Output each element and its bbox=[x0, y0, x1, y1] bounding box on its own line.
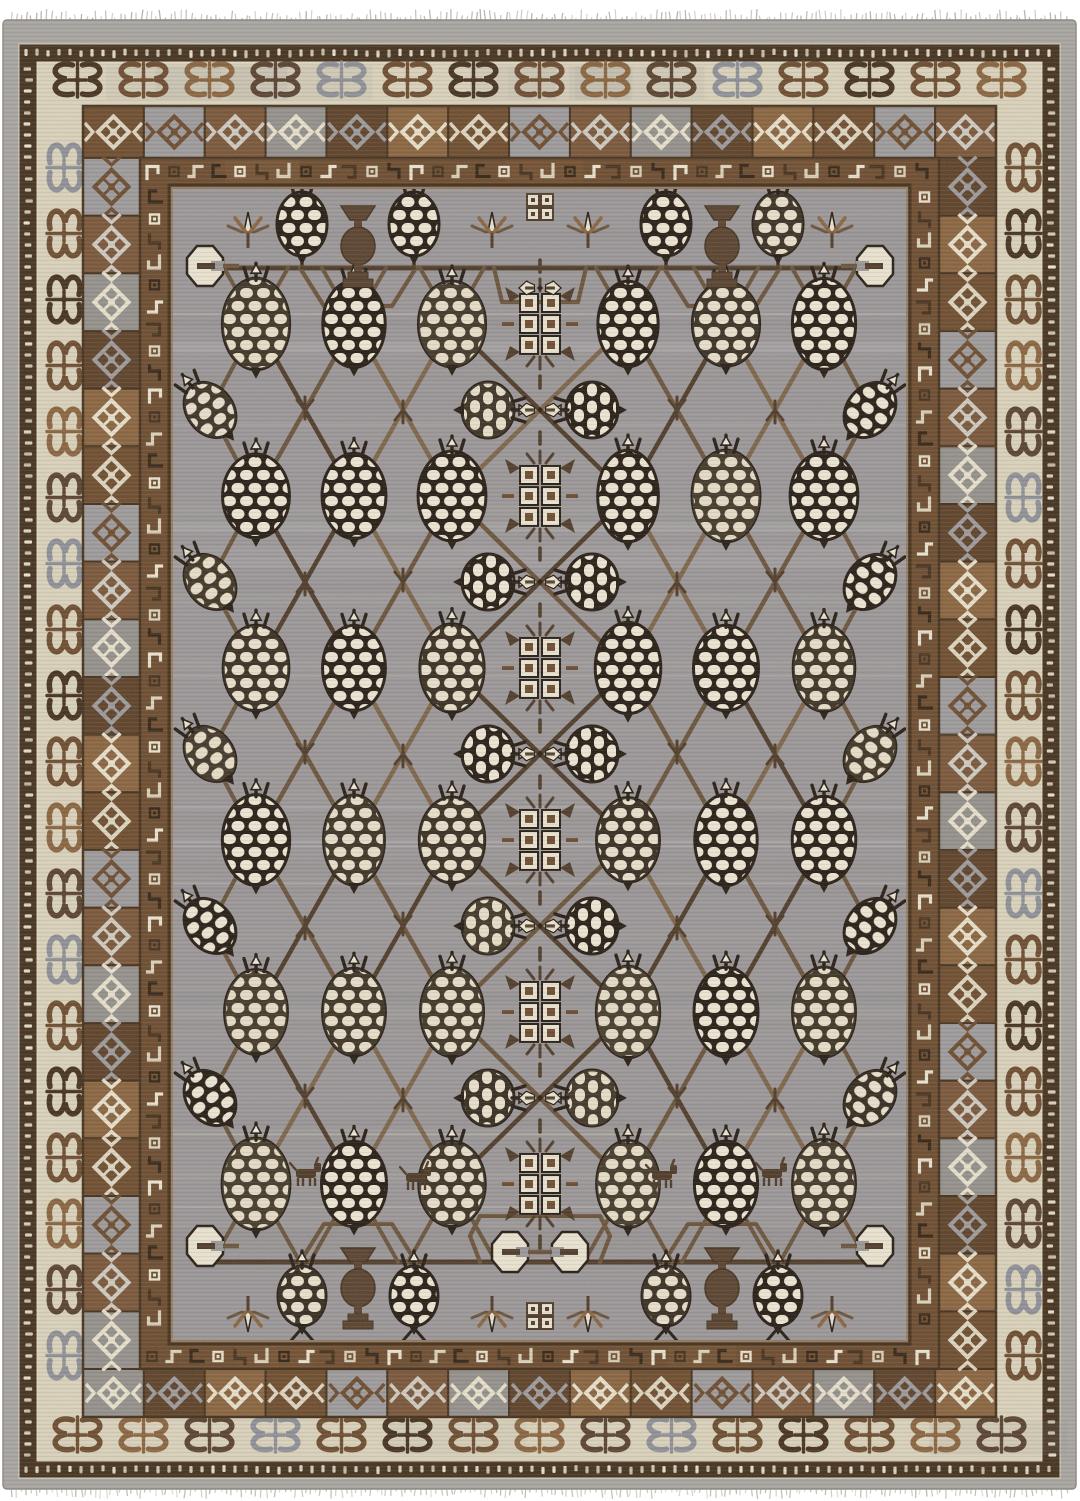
rug-photo bbox=[0, 0, 1080, 1501]
wool-grain-texture bbox=[3, 20, 1076, 1489]
rug-image bbox=[0, 0, 1080, 1501]
